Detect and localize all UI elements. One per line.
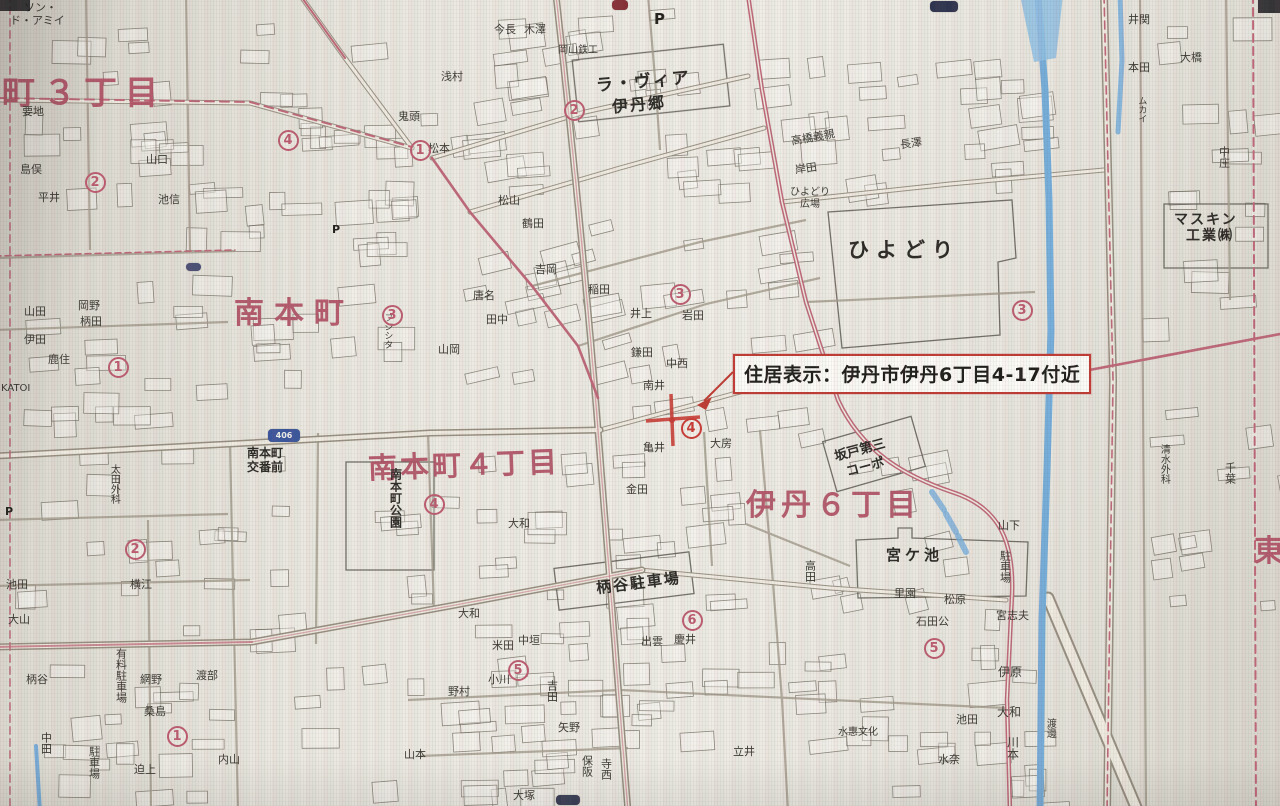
- building-label: 太田外科: [108, 464, 118, 504]
- building-label: 岡野: [78, 300, 100, 311]
- building-label: 木澤: [524, 24, 546, 35]
- building-label: 岩田: [682, 310, 704, 321]
- building-label: 迫上: [134, 764, 156, 775]
- district-label: 伊丹６丁目: [746, 490, 921, 521]
- place-label: ラ・ヴィア: [595, 70, 691, 96]
- building-label: 駐車場: [999, 550, 1010, 583]
- building-label: 保阪: [581, 755, 592, 777]
- building-label: P: [654, 12, 665, 28]
- sign-badge: [612, 0, 628, 10]
- sign-badge: [556, 795, 580, 805]
- building-label: 千葉: [1224, 462, 1235, 484]
- circled-number: 6: [682, 610, 703, 631]
- building-label: 大和: [458, 608, 480, 619]
- building-label: 山口: [146, 154, 168, 165]
- circled-number: 4: [681, 418, 702, 439]
- building-label: 山岡: [438, 344, 460, 355]
- building-label: 吉岡: [535, 264, 557, 275]
- building-label: 池田: [956, 714, 978, 725]
- building-label: 桑島: [144, 706, 166, 717]
- building-label: 中垣: [518, 635, 540, 646]
- building-label: 大和: [508, 518, 530, 529]
- building-label: 浅村: [441, 71, 463, 82]
- sign-badge: [930, 1, 958, 12]
- building-label: 松山: [498, 195, 520, 206]
- building-label: 金田: [626, 484, 648, 495]
- building-label: 鬼頭: [398, 111, 420, 122]
- photo-artifact: [1258, 0, 1280, 13]
- building-label: ムカイ: [1136, 96, 1145, 123]
- building-label: 石田公: [916, 616, 949, 627]
- building-label: 大橋: [1180, 52, 1202, 63]
- building-label: 今長: [494, 24, 516, 35]
- building-label: 鎌田: [631, 347, 653, 358]
- building-label: 小川: [488, 674, 510, 685]
- map-labels: 町３丁目南本町南本町４丁目伊丹６丁目東ラ・ヴィア伊丹郷ひよどりひよどり広場宮ケ池…: [0, 0, 1280, 806]
- building-label: 横江: [130, 579, 152, 590]
- building-label: 米田: [492, 640, 514, 651]
- building-label: ド・アミイ: [10, 15, 65, 26]
- building-label: 寺西: [600, 758, 611, 780]
- circled-number: 2: [85, 172, 106, 193]
- sign-badge: [186, 263, 201, 271]
- building-label: 亀井: [643, 442, 665, 453]
- building-label: 松本: [428, 143, 450, 154]
- building-label: 岡山鉄工: [558, 46, 598, 56]
- circled-number: 4: [424, 494, 445, 515]
- building-label: 清水外科: [1158, 444, 1168, 484]
- building-label: 吉田: [546, 680, 557, 702]
- building-label: 高橋義親: [790, 128, 835, 147]
- circled-number: 3: [1012, 300, 1033, 321]
- place-label: マスキン: [1174, 213, 1238, 228]
- building-label: 駐車場: [88, 746, 99, 779]
- building-label: ひよどり: [790, 188, 830, 198]
- circled-number: 1: [410, 140, 431, 161]
- building-label: 唐名: [473, 290, 495, 301]
- building-label: 稲田: [588, 284, 610, 295]
- building-label: 広場: [800, 200, 820, 210]
- building-label: 大房: [710, 438, 732, 449]
- building-label: 網野: [140, 674, 162, 685]
- building-label: 南井: [643, 380, 665, 391]
- building-label: 本田: [1128, 62, 1150, 73]
- building-label: 水奈: [938, 754, 960, 765]
- route-number-badge: 406: [268, 429, 300, 442]
- building-label: 矢野: [558, 722, 580, 733]
- circled-number: 2: [125, 539, 146, 560]
- district-label: 東: [1254, 536, 1280, 567]
- building-label: 山田: [24, 306, 46, 317]
- circled-number: 1: [108, 357, 129, 378]
- building-label: 中庄: [1218, 146, 1229, 168]
- building-label: 松原: [944, 594, 966, 605]
- building-label: 井関: [1128, 14, 1150, 25]
- building-label: 慶井: [674, 634, 696, 645]
- place-label: 伊丹郷: [611, 95, 666, 116]
- map-viewport: 町３丁目南本町南本町４丁目伊丹６丁目東ラ・ヴィア伊丹郷ひよどりひよどり広場宮ケ池…: [0, 0, 1280, 806]
- circled-number: 5: [924, 638, 945, 659]
- building-label: 井上: [630, 308, 652, 319]
- building-label: 山本: [404, 749, 426, 760]
- building-label: 岸田: [794, 162, 817, 176]
- building-label: 大山: [8, 614, 30, 625]
- place-label: 工業㈱: [1186, 229, 1234, 244]
- circled-number: 1: [167, 726, 188, 747]
- building-label: 長澤: [899, 137, 922, 151]
- building-label: 伊田: [24, 334, 46, 345]
- building-label: 池信: [158, 194, 180, 205]
- place-label: ひよどり: [848, 240, 960, 262]
- building-label: 川本: [1006, 736, 1018, 760]
- building-label: 野村: [448, 686, 470, 697]
- building-label: 島俣: [20, 164, 42, 175]
- building-label: 要地: [22, 106, 44, 117]
- building-label: 大塚: [513, 790, 535, 801]
- building-label: 大和: [997, 706, 1021, 718]
- circled-number: 3: [382, 305, 403, 326]
- address-annotation: 住居表示：伊丹市伊丹6丁目4-17付近: [733, 354, 1091, 394]
- circled-number: 5: [508, 660, 529, 681]
- building-label: 内山: [218, 754, 240, 765]
- building-label: KATOI: [1, 384, 30, 394]
- district-label: 南本町: [234, 298, 354, 329]
- building-label: 高田: [804, 560, 815, 582]
- building-label: P: [332, 224, 340, 235]
- building-label: P: [5, 506, 13, 517]
- building-label: 立井: [733, 746, 755, 757]
- place-label: 宮ケ池: [886, 548, 943, 564]
- building-label: 水惠文化: [838, 728, 878, 738]
- map-screenshot: 町３丁目南本町南本町４丁目伊丹６丁目東ラ・ヴィア伊丹郷ひよどりひよどり広場宮ケ池…: [0, 0, 1280, 806]
- place-label: 南本町: [247, 447, 283, 459]
- building-label: 里園: [894, 588, 916, 599]
- building-label: 山下: [998, 520, 1020, 531]
- building-label: 鶴田: [522, 218, 544, 229]
- circled-number: 3: [670, 284, 691, 305]
- building-label: 中西: [666, 358, 688, 369]
- photo-artifact: [0, 0, 30, 11]
- building-label: 柄田: [80, 316, 102, 327]
- building-label: 池田: [6, 579, 28, 590]
- circled-number: 4: [278, 130, 299, 151]
- building-label: 宮志夫: [996, 610, 1029, 621]
- building-label: 伊原: [998, 666, 1022, 678]
- building-label: 柄谷: [26, 674, 48, 685]
- place-label: 交番前: [247, 461, 283, 473]
- building-label: 鹿住: [48, 354, 70, 365]
- place-label: 柄谷駐車場: [595, 571, 681, 597]
- building-label: 有料駐車場: [115, 648, 126, 703]
- circled-number: 2: [564, 100, 585, 121]
- building-label: 渡部: [196, 670, 218, 681]
- building-label: 中田: [40, 732, 51, 754]
- building-label: 渡邊: [1044, 718, 1054, 738]
- building-label: 田中: [486, 314, 508, 325]
- building-label: 平井: [38, 192, 60, 203]
- place-label: 南本町公園: [389, 468, 401, 528]
- building-label: 出雲: [641, 636, 663, 647]
